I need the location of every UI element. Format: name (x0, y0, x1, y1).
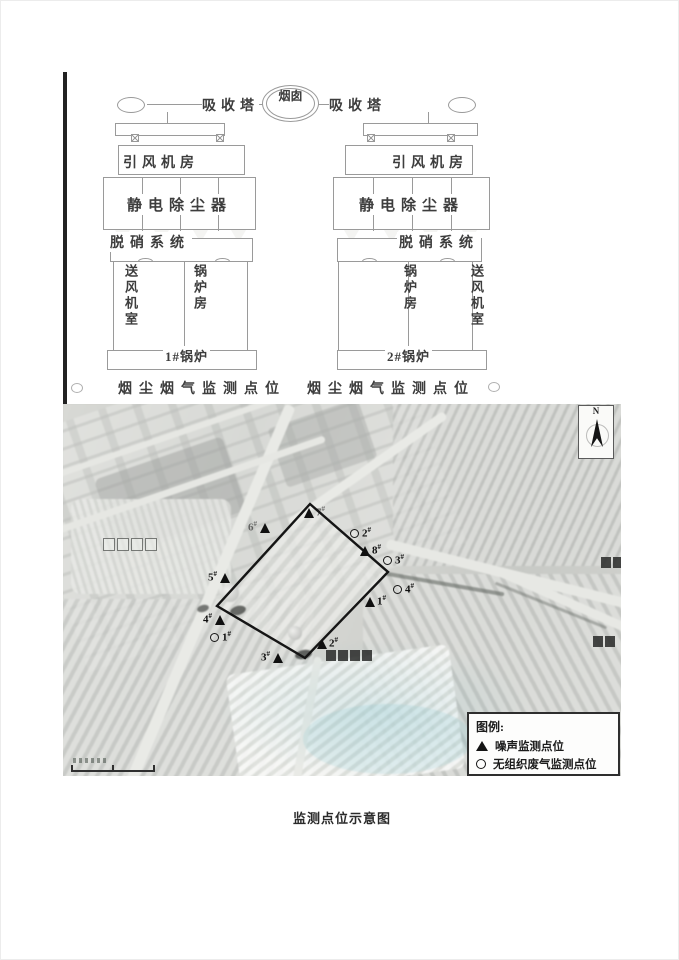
gas-point-1# (210, 633, 219, 642)
flue-caption-left: 烟尘烟气监测点位 (118, 378, 286, 398)
marker-label: 6# (248, 521, 257, 534)
marker-label: 3# (261, 651, 270, 664)
marker-label: 3# (395, 554, 404, 567)
triangle-icon (476, 741, 488, 751)
north-arrow: N (578, 405, 614, 459)
marker-label: 4# (203, 613, 212, 626)
marker-label: 1# (222, 631, 231, 644)
fan-room-right-box: 引风机房 (345, 145, 473, 175)
noise-point-2# (317, 639, 327, 649)
air-room-right-label: 送风机室 (467, 264, 486, 328)
marker-label: 1# (377, 595, 386, 608)
fan-room-right-label: 引风机房 (392, 152, 468, 172)
scale-text-smudge (73, 758, 107, 763)
noise-point-3# (273, 653, 283, 663)
boiler-room-right-label: 锅炉房 (400, 264, 419, 312)
fan-room-left-label: 引风机房 (123, 152, 199, 172)
noise-point-1# (365, 597, 375, 607)
air-room-left-label: 送风机室 (121, 264, 140, 328)
scale-bar (71, 760, 155, 772)
circle-icon (476, 759, 486, 769)
esp-right-box: 静电除尘器 (333, 177, 490, 230)
flue-monitor-circle-icon (71, 383, 83, 393)
figure-caption: 监测点位示意图 (63, 808, 621, 827)
legend-item-noise: 噪声监测点位 (476, 737, 611, 755)
damper-icon (367, 134, 375, 142)
gas-point-3# (383, 556, 392, 565)
damper-icon (216, 134, 224, 142)
marker-label: 4# (405, 583, 414, 596)
fan-room-left-box: 引风机房 (118, 145, 245, 175)
boiler-flue-diagram: 烟囱 吸收塔 吸收塔 引风机房 引风机房 静电除尘器 静电除尘器 脱硝系统 脱硝… (63, 72, 540, 405)
damper-icon (447, 134, 455, 142)
monitoring-site-map: 1#2#3#4#5#6#7#8#1#2#3#4# N 图例: 噪声监测点位 无组… (63, 404, 621, 776)
marker-label: 7# (316, 506, 325, 519)
esp-left-box: 静电除尘器 (103, 177, 256, 230)
legend-item-label: 噪声监测点位 (495, 738, 564, 754)
noise-point-7# (304, 508, 314, 518)
absorber-right-tank (448, 97, 476, 113)
absorber-left-label: 吸收塔 (202, 95, 259, 115)
north-label: N (579, 406, 613, 417)
marker-label: 2# (329, 637, 338, 650)
scan-artifact-bar (63, 72, 67, 405)
marker-label: 8# (372, 544, 381, 557)
marker-label: 5# (208, 571, 217, 584)
flue-caption-right: 烟尘烟气监测点位 (307, 378, 475, 398)
boiler-left-id: 1#锅炉 (163, 346, 210, 365)
map-legend: 图例: 噪声监测点位 无组织废气监测点位 (467, 712, 620, 776)
noise-point-4# (215, 615, 225, 625)
gas-point-2# (350, 529, 359, 538)
flue-monitor-circle-icon (488, 382, 500, 392)
legend-item-label: 无组织废气监测点位 (493, 756, 597, 772)
boiler-room-left-label: 锅炉房 (190, 264, 209, 312)
denox-right-label: 脱硝系统 (397, 232, 481, 252)
document-page: { "diagram": { "chimney_label": "烟囱", "a… (0, 0, 679, 960)
legend-title: 图例: (476, 718, 611, 735)
chimney-label: 烟囱 (266, 90, 315, 103)
absorber-left-tank (117, 97, 145, 113)
boiler-right-id: 2#锅炉 (385, 346, 432, 365)
duct-header-right (363, 123, 478, 136)
esp-left-label: 静电除尘器 (125, 194, 234, 215)
damper-icon (131, 134, 139, 142)
legend-item-gas: 无组织废气监测点位 (476, 755, 611, 773)
marker-label: 2# (362, 527, 371, 540)
gas-point-4# (393, 585, 402, 594)
denox-left-label: 脱硝系统 (108, 232, 192, 252)
noise-point-8# (360, 546, 370, 556)
absorber-right-label: 吸收塔 (329, 95, 386, 115)
noise-point-6# (260, 523, 270, 533)
esp-right-label: 静电除尘器 (357, 194, 466, 215)
noise-point-5# (220, 573, 230, 583)
